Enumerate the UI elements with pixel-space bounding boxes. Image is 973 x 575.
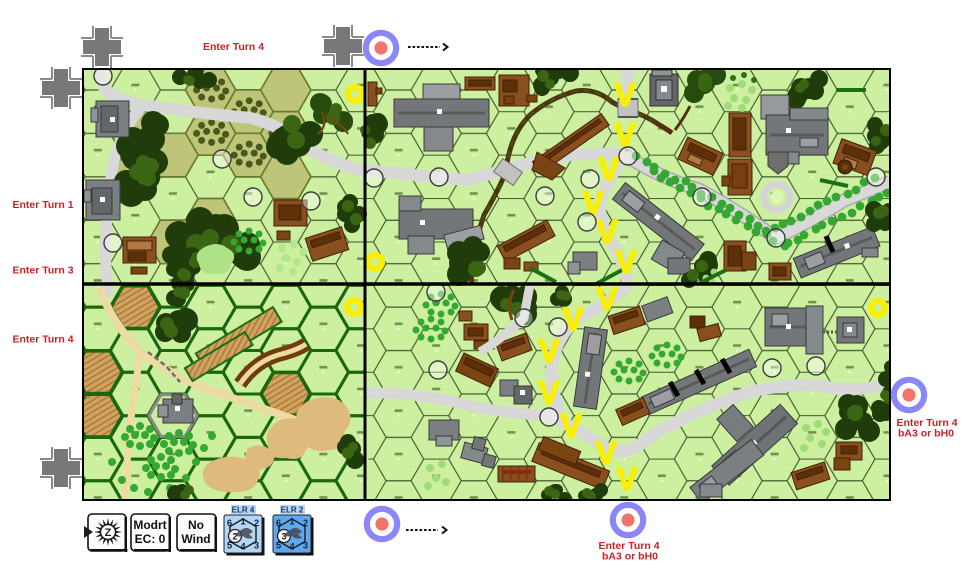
svg-text:V: V (595, 435, 617, 471)
svg-text:3: 3 (254, 541, 259, 552)
svg-text:V: V (560, 408, 582, 444)
svg-text:Wind: Wind (181, 532, 210, 546)
svg-text:V: V (616, 461, 638, 497)
svg-text:1: 1 (240, 517, 246, 528)
svg-text:V: V (538, 375, 560, 411)
svg-text:6: 6 (276, 518, 281, 529)
svg-text:No: No (188, 518, 204, 532)
svg-text:V: V (615, 244, 637, 280)
svg-text:4: 4 (240, 542, 246, 553)
svg-text:Z: Z (105, 527, 112, 539)
svg-text:V: V (598, 151, 620, 187)
svg-text:V: V (596, 281, 618, 317)
svg-text:1: 1 (289, 517, 295, 528)
svg-text:ELR 2: ELR 2 (281, 506, 304, 515)
svg-text:V: V (538, 333, 560, 369)
svg-text:Enter Turn 3: Enter Turn 3 (13, 265, 74, 277)
svg-text:3: 3 (303, 541, 308, 552)
svg-text:Enter Turn 1: Enter Turn 1 (13, 199, 74, 211)
svg-text:2: 2 (303, 518, 308, 529)
svg-text:bA3 or bH0: bA3 or bH0 (898, 428, 954, 440)
svg-text:2: 2 (254, 518, 259, 529)
svg-text:V: V (614, 77, 636, 113)
svg-text:bA3 or bH0: bA3 or bH0 (602, 551, 658, 563)
svg-text:6: 6 (227, 518, 232, 529)
svg-text:EC: 0: EC: 0 (135, 532, 166, 546)
svg-text:ELR 4: ELR 4 (232, 506, 255, 515)
svg-text:Enter Turn 4: Enter Turn 4 (203, 41, 264, 53)
svg-text:4: 4 (289, 542, 295, 553)
svg-text:Modrt: Modrt (133, 518, 166, 532)
svg-text:Enter Turn 4: Enter Turn 4 (13, 334, 74, 346)
